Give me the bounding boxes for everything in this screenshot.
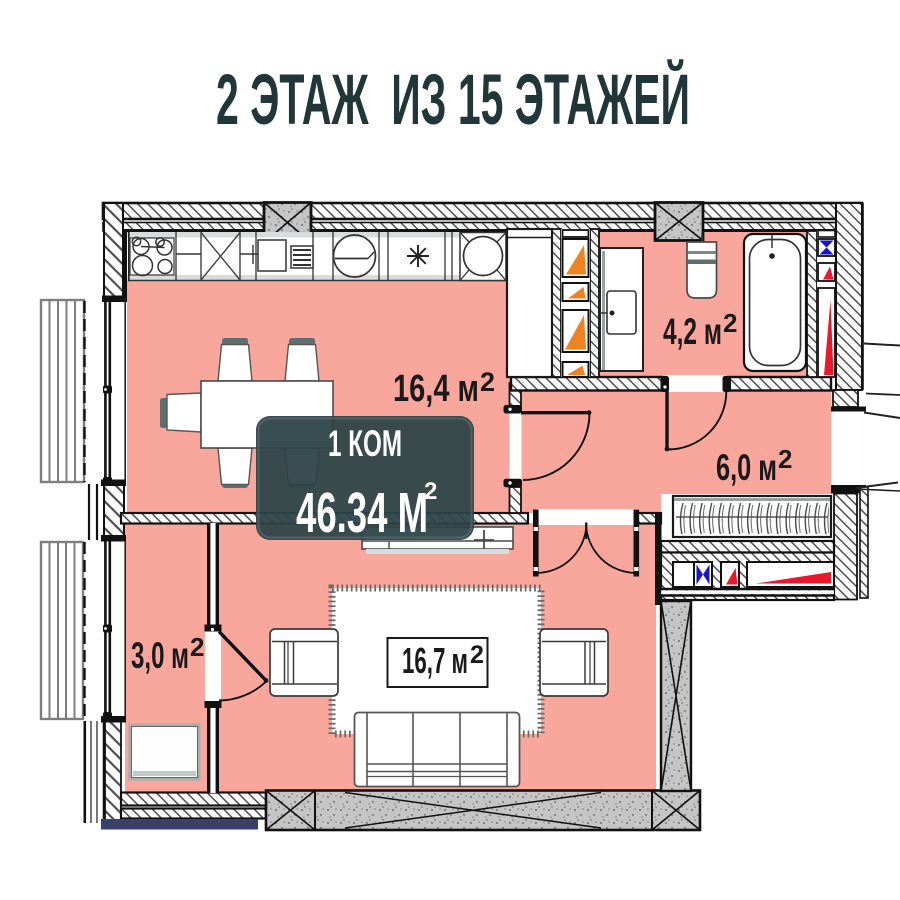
svg-text:16,7 м: 16,7 м <box>402 640 468 681</box>
svg-text:16,4 м: 16,4 м <box>393 368 479 410</box>
svg-text:46.34 М: 46.34 М <box>296 481 428 545</box>
svg-text:2: 2 <box>723 308 737 338</box>
svg-text:2: 2 <box>190 632 204 662</box>
svg-text:3,0 м: 3,0 м <box>131 635 189 676</box>
svg-text:6,0 м: 6,0 м <box>716 447 777 488</box>
svg-text:1 КОМ: 1 КОМ <box>328 423 402 464</box>
svg-text:4,2 м: 4,2 м <box>663 311 722 352</box>
svg-text:2: 2 <box>424 478 437 505</box>
svg-text:2 ЭТАЖ ИЗ 15 ЭТАЖЕЙ: 2 ЭТАЖ ИЗ 15 ЭТАЖЕЙ <box>216 60 690 140</box>
svg-text:2: 2 <box>778 444 792 474</box>
svg-text:2: 2 <box>480 367 495 397</box>
svg-text:2: 2 <box>470 641 484 669</box>
